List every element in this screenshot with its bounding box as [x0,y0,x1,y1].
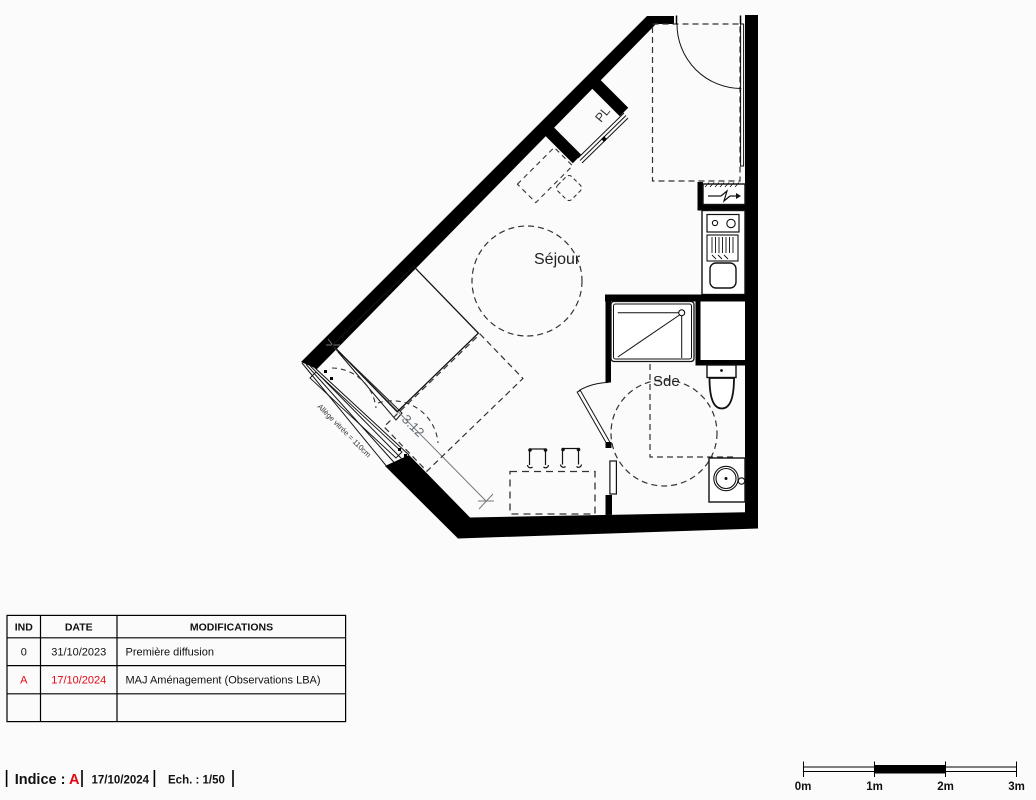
svg-text:DATE: DATE [65,622,93,634]
svg-text:Séjour: Séjour [534,251,581,268]
svg-text:17/10/2024: 17/10/2024 [92,775,150,787]
svg-text:Ech. : 1/50: Ech. : 1/50 [168,775,225,787]
svg-text:MAJ Aménagement (Observations: MAJ Aménagement (Observations LBA) [126,675,321,687]
svg-text:Sde: Sde [653,373,680,390]
svg-text:31/10/2023: 31/10/2023 [51,647,106,659]
svg-text:IND: IND [15,622,34,634]
svg-text:A: A [69,772,80,788]
svg-text:MODIFICATIONS: MODIFICATIONS [190,622,273,634]
svg-text:0: 0 [21,647,27,659]
svg-text:Indice :: Indice : [15,772,66,788]
svg-text:17/10/2024: 17/10/2024 [51,675,106,687]
svg-text:A: A [20,675,28,687]
svg-text:3m: 3m [1008,781,1025,793]
svg-text:Première diffusion: Première diffusion [126,647,214,659]
svg-text:2m: 2m [937,781,954,793]
svg-text:0m: 0m [795,781,812,793]
svg-text:1m: 1m [866,781,883,793]
